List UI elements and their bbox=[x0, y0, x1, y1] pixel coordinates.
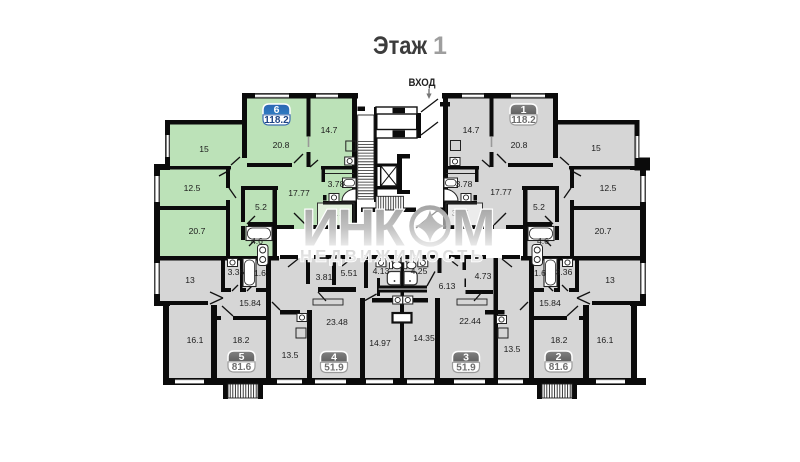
svg-text:51.9: 51.9 bbox=[456, 362, 476, 373]
svg-text:20.7: 20.7 bbox=[189, 226, 206, 236]
svg-text:17.77: 17.77 bbox=[288, 188, 310, 198]
svg-text:15: 15 bbox=[591, 143, 601, 153]
svg-text:3.81: 3.81 bbox=[316, 272, 333, 282]
svg-text:5.2: 5.2 bbox=[533, 202, 545, 212]
svg-text:4.25: 4.25 bbox=[411, 266, 428, 276]
svg-text:14.35: 14.35 bbox=[413, 333, 435, 343]
svg-text:13: 13 bbox=[185, 275, 195, 285]
svg-text:20.8: 20.8 bbox=[511, 140, 528, 150]
svg-text:ВХОД: ВХОД bbox=[409, 77, 436, 89]
svg-text:81.6: 81.6 bbox=[549, 362, 569, 373]
svg-text:3.78: 3.78 bbox=[456, 179, 473, 189]
svg-text:14.97: 14.97 bbox=[369, 338, 391, 348]
svg-text:6.13: 6.13 bbox=[439, 281, 456, 291]
svg-text:Этаж: Этаж bbox=[373, 32, 427, 60]
svg-text:5.51: 5.51 bbox=[341, 268, 358, 278]
svg-text:81.6: 81.6 bbox=[232, 362, 252, 373]
svg-text:23.48: 23.48 bbox=[326, 317, 348, 327]
svg-text:51.9: 51.9 bbox=[324, 362, 344, 373]
svg-text:НЕДВИЖИМОСТЬ: НЕДВИЖИМОСТЬ bbox=[300, 248, 486, 266]
svg-text:4.6: 4.6 bbox=[251, 236, 263, 246]
svg-text:118.2: 118.2 bbox=[264, 115, 289, 126]
svg-text:12.5: 12.5 bbox=[184, 183, 201, 193]
svg-text:4.13: 4.13 bbox=[373, 266, 390, 276]
svg-text:14.7: 14.7 bbox=[463, 125, 480, 135]
svg-text:18.2: 18.2 bbox=[551, 335, 568, 345]
svg-text:1: 1 bbox=[433, 32, 447, 60]
svg-text:20.8: 20.8 bbox=[273, 140, 290, 150]
svg-text:16.1: 16.1 bbox=[187, 335, 204, 345]
svg-text:4.6: 4.6 bbox=[537, 236, 549, 246]
svg-text:4.73: 4.73 bbox=[475, 271, 492, 281]
svg-text:3.36: 3.36 bbox=[228, 267, 245, 277]
svg-text:3.36: 3.36 bbox=[556, 267, 573, 277]
svg-text:15: 15 bbox=[199, 144, 209, 154]
svg-text:16.1: 16.1 bbox=[597, 335, 614, 345]
svg-text:14.7: 14.7 bbox=[321, 125, 338, 135]
svg-text:3.78: 3.78 bbox=[328, 179, 345, 189]
svg-text:20.7: 20.7 bbox=[595, 226, 612, 236]
svg-text:5.2: 5.2 bbox=[255, 202, 267, 212]
svg-text:1.6: 1.6 bbox=[534, 268, 546, 278]
svg-text:13.5: 13.5 bbox=[504, 344, 521, 354]
svg-text:15.84: 15.84 bbox=[539, 298, 561, 308]
svg-text:15.84: 15.84 bbox=[239, 298, 261, 308]
svg-text:118.2: 118.2 bbox=[511, 115, 536, 126]
svg-text:22.44: 22.44 bbox=[459, 316, 481, 326]
svg-text:13: 13 bbox=[605, 275, 615, 285]
svg-text:18.2: 18.2 bbox=[233, 335, 250, 345]
svg-text:1.6: 1.6 bbox=[254, 268, 266, 278]
svg-text:17.77: 17.77 bbox=[490, 187, 512, 197]
svg-text:12.5: 12.5 bbox=[600, 183, 617, 193]
svg-text:13.5: 13.5 bbox=[282, 350, 299, 360]
